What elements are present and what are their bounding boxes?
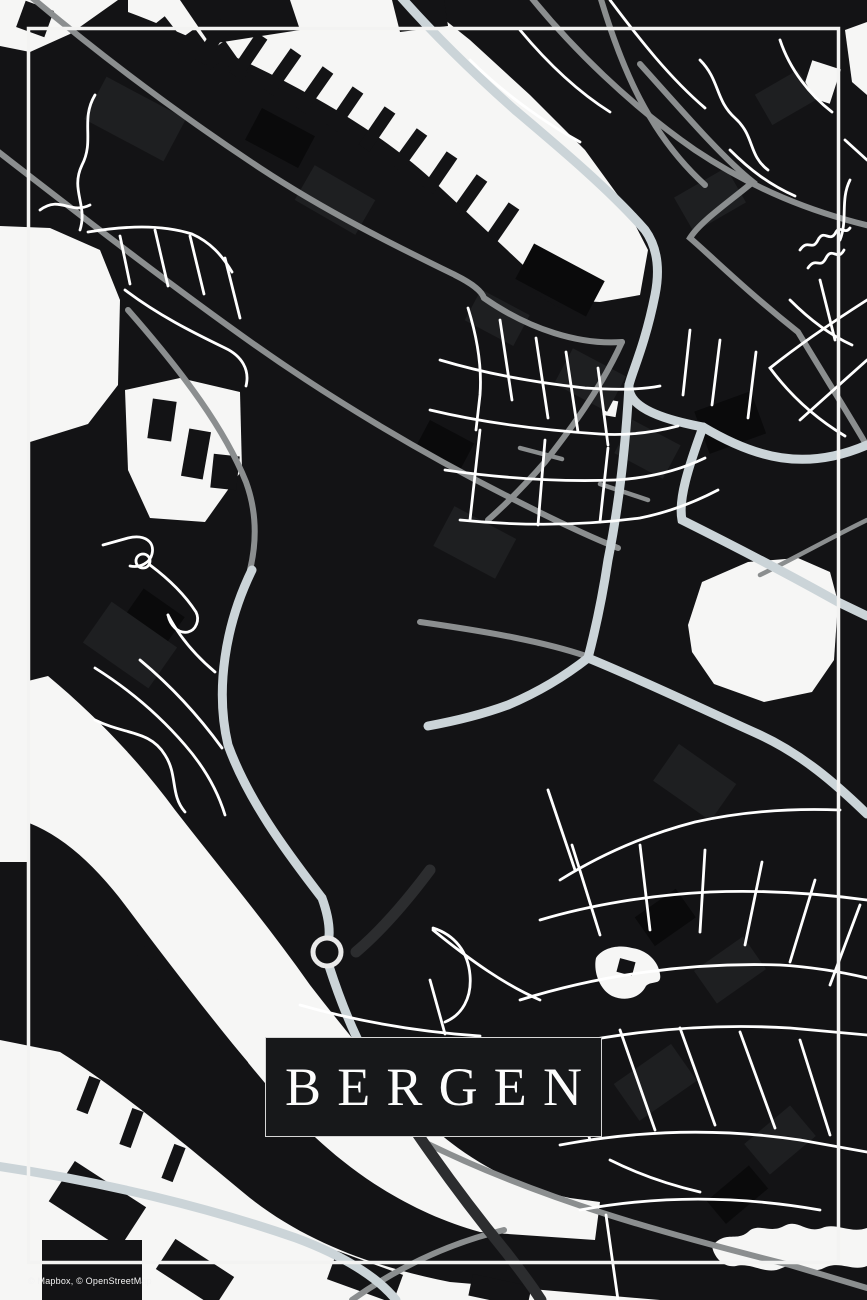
map-title: BERGEN: [285, 1056, 598, 1118]
map-attribution: © Mapbox, © OpenStreetMap: [28, 1276, 152, 1286]
map-poster: BERGEN © Mapbox, © OpenStreetMap: [0, 0, 867, 1300]
map-title-box: BERGEN: [265, 1037, 602, 1137]
roundabout-icon: [313, 938, 341, 966]
